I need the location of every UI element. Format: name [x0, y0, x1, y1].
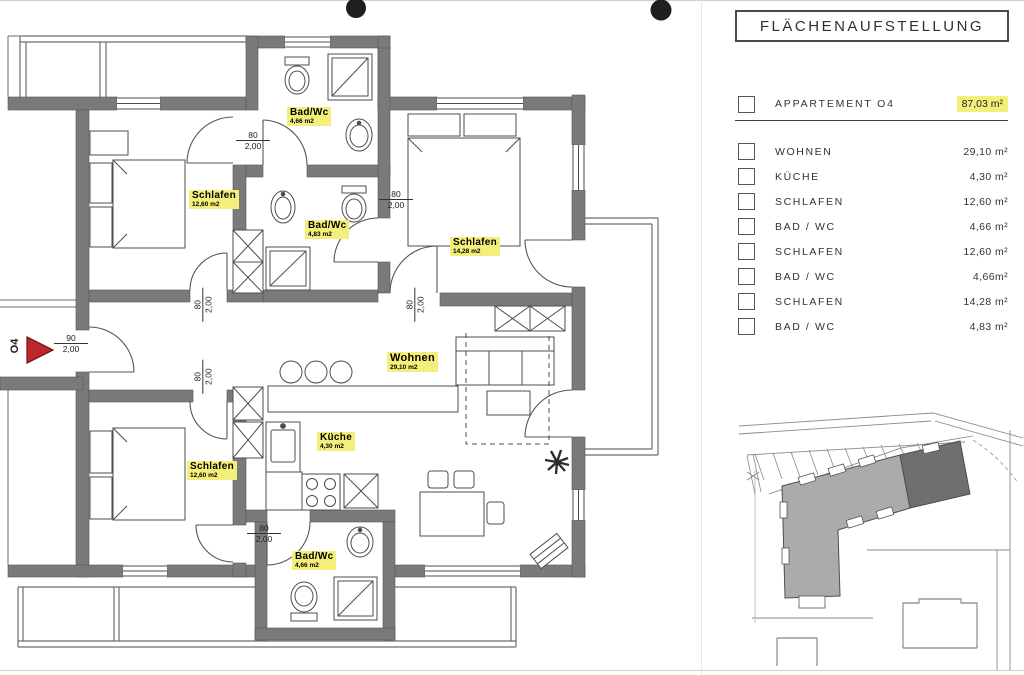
neighbor-buildings [777, 599, 977, 666]
entrance-tag: O4 [9, 333, 21, 359]
sofa-icon [456, 337, 554, 385]
legend-checkbox [738, 268, 755, 285]
stove-icon [302, 474, 340, 510]
legend-title: FLÄCHENAUFSTELLUNG [760, 18, 984, 35]
legend-checkbox [738, 193, 755, 210]
room-label-bad-middle: Bad/Wc 4,83 m2 [305, 220, 349, 239]
door-dim-label: 80 2,00 [192, 288, 213, 322]
scanned-floorplan-page: O4 90 2,00 80 2,00 80 2,00 80 2,00 80 2,… [0, 0, 1024, 675]
site-boundary-lines [739, 413, 1023, 670]
area-row: BAD / WC 4,83 m² [735, 314, 1008, 339]
door-dim-label: 80 2,00 [379, 189, 413, 210]
legend-title-box: FLÄCHENAUFSTELLUNG [735, 10, 1009, 42]
room-label-wohnen: Wohnen 29,10 m2 [387, 352, 438, 372]
legend-checkbox [738, 243, 755, 260]
area-row: WOHNEN 29,10 m² [735, 139, 1008, 164]
room-label-bad-bottom: Bad/Wc 4,66 m2 [292, 551, 336, 570]
coffee-table [487, 391, 530, 415]
furniture [90, 54, 569, 621]
apartment-total-row: APPARTEMENT O4 87,03 m² [735, 93, 1008, 115]
closet [495, 306, 565, 331]
washbasin-icon [347, 527, 373, 557]
room-label-kueche: Küche 4,30 m2 [317, 432, 355, 451]
context-lines [0, 36, 76, 565]
legend-divider [735, 120, 1008, 121]
bed-icon [90, 428, 185, 520]
washbasin-icon [346, 119, 372, 151]
legend-checkbox [738, 218, 755, 235]
legend-checkbox [738, 318, 755, 335]
legend-checkbox [738, 168, 755, 185]
door-dim-label: 80 2,00 [247, 523, 281, 544]
door-dim-label: 90 2,00 [54, 333, 88, 354]
punch-hole-icons [346, 0, 672, 21]
room-label-schlafen-top-right: Schlafen 14,28 m2 [450, 237, 500, 256]
floor-plan [0, 0, 730, 675]
plant-icon [545, 450, 569, 474]
bar-stool-icons [280, 361, 352, 383]
apartment-label: APPARTEMENT O4 [775, 98, 957, 110]
legend-checkbox [738, 96, 755, 113]
area-row: SCHLAFEN 14,28 m² [735, 289, 1008, 314]
legend-checkbox [738, 143, 755, 160]
apartment-area-highlight: 87,03 m² [957, 96, 1008, 112]
legend-checkbox [738, 293, 755, 310]
balcony-rails [18, 36, 658, 647]
dining-set [420, 471, 504, 536]
door-dim-label: 80 2,00 [236, 130, 270, 151]
area-row: SCHLAFEN 12,60 m² [735, 239, 1008, 264]
area-row: BAD / WC 4,66 m² [735, 214, 1008, 239]
washbasin-icon [271, 191, 295, 223]
shower-icon [328, 54, 372, 100]
room-label-schlafen-bottom: Schlafen 12,60 m2 [187, 461, 237, 480]
room-label-schlafen-top-left: Schlafen 12,60 m2 [189, 190, 239, 209]
door-dim-label: 80 2,00 [404, 288, 425, 322]
door-dim-label: 80 2,00 [192, 360, 213, 394]
double-bed-icon [408, 114, 520, 246]
area-row: KÜCHE 4,30 m² [735, 164, 1008, 189]
area-list: WOHNEN 29,10 m² KÜCHE 4,30 m² SCHLAFEN 1… [735, 139, 1008, 339]
area-row: SCHLAFEN 12,60 m² [735, 189, 1008, 214]
lounger-icon [530, 533, 568, 568]
site-building [769, 436, 973, 608]
shower-icon [266, 247, 310, 290]
toilet-icon [342, 186, 366, 222]
toilet-icon [285, 57, 309, 94]
site-plan [733, 398, 1024, 675]
area-row: BAD / WC 4,66m² [735, 264, 1008, 289]
entrance-arrow-icon [27, 337, 53, 363]
toilet-icon [291, 582, 317, 621]
shower-icon [334, 577, 377, 620]
bed-icon [90, 131, 185, 248]
room-label-bad-top: Bad/Wc 4,66 m2 [287, 107, 331, 126]
